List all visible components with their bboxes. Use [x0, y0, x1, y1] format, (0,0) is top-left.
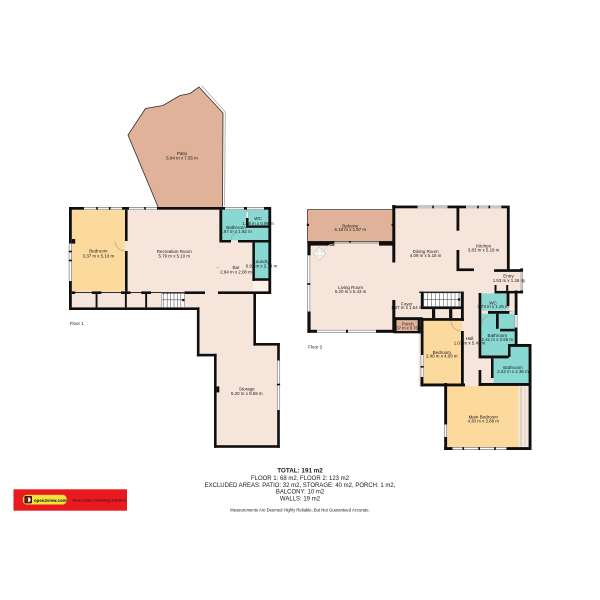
svg-text:Real estate marketing solution: Real estate marketing solutions. — [73, 498, 128, 503]
svg-text:←: ← — [216, 265, 220, 270]
svg-text:FLOOR 1: 68 m2, FLOOR 2: 123 m: FLOOR 1: 68 m2, FLOOR 2: 123 m2 — [251, 476, 350, 482]
svg-text:5.19 m x 1.97 m: 5.19 m x 1.97 m — [335, 227, 367, 232]
svg-text:4.30 m x 3.88 m: 4.30 m x 3.88 m — [467, 419, 499, 424]
svg-text:2.97 m x 1.82 m: 2.97 m x 1.82 m — [220, 229, 252, 234]
svg-text:WALLS: 19 m2: WALLS: 19 m2 — [280, 496, 321, 502]
svg-text:Measurements Are Deemed Highly: Measurements Are Deemed Highly Reliable,… — [230, 508, 369, 513]
svg-text:3.37 m x 5.10 m: 3.37 m x 5.10 m — [83, 253, 115, 258]
svg-text:3.83 m x 5.19 m: 3.83 m x 5.19 m — [468, 247, 500, 252]
svg-text:open2view.com: open2view.com — [34, 498, 67, 503]
svg-text:TOTAL: 191 m2: TOTAL: 191 m2 — [277, 468, 323, 475]
svg-text:1.67 m x 1.54 m: 1.67 m x 1.54 m — [391, 305, 423, 310]
svg-text:2.84 m x 2.08 m: 2.84 m x 2.08 m — [220, 270, 252, 275]
svg-text:BALCONY: 10 m2: BALCONY: 10 m2 — [276, 490, 325, 496]
svg-text:1.73 m x 1.25 m: 1.73 m x 1.25 m — [477, 304, 509, 309]
svg-text:0.92 m x 2.19 m: 0.92 m x 2.19 m — [246, 264, 278, 269]
svg-text:EXCLUDED AREAS: PATIO: 32 m2,: EXCLUDED AREAS: PATIO: 32 m2, STORAGE: 4… — [205, 483, 396, 489]
svg-text:1.53 m x 1.26 m: 1.53 m x 1.26 m — [493, 278, 525, 283]
svg-text:2.41 m x 2.65 m: 2.41 m x 2.65 m — [482, 337, 514, 342]
svg-text:5.94 m x 7.55 m: 5.94 m x 7.55 m — [166, 155, 198, 160]
svg-text:5.20 m x 5.43 m: 5.20 m x 5.43 m — [335, 289, 367, 294]
svg-text:5.20 m x 9.59 m: 5.20 m x 9.59 m — [231, 391, 263, 396]
svg-text:Floor 2: Floor 2 — [308, 344, 323, 349]
svg-text:Floor 1: Floor 1 — [70, 321, 85, 326]
svg-text:5.79 m x 5.10 m: 5.79 m x 5.10 m — [159, 254, 191, 259]
svg-text:4.09 m x 5.18 m: 4.09 m x 5.18 m — [410, 253, 442, 258]
svg-text:1.78 m x 0.99 m: 1.78 m x 0.99 m — [242, 221, 274, 226]
svg-text:1.03 m x 5.43 m: 1.03 m x 5.43 m — [454, 340, 486, 345]
svg-text:2.40 m x 4.05 m: 2.40 m x 4.05 m — [426, 354, 458, 359]
svg-text:2.22 m x 2.36 m: 2.22 m x 2.36 m — [497, 369, 529, 374]
